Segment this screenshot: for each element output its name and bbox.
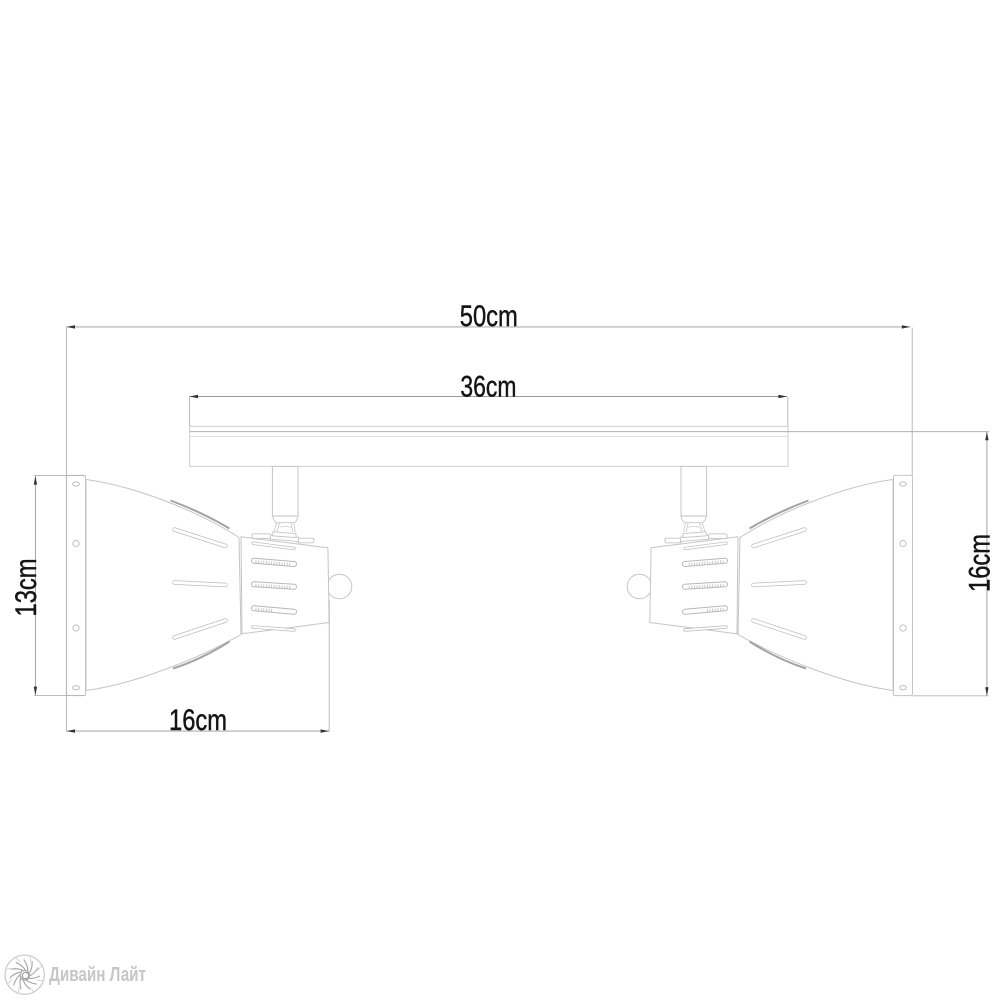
svg-text:16cm: 16cm (169, 704, 227, 737)
svg-text:16cm: 16cm (964, 534, 997, 592)
svg-text:Дивайн Лайт: Дивайн Лайт (49, 964, 146, 986)
svg-text:36cm: 36cm (460, 371, 516, 404)
svg-text:13cm: 13cm (10, 559, 43, 617)
svg-text:50cm: 50cm (460, 300, 518, 333)
